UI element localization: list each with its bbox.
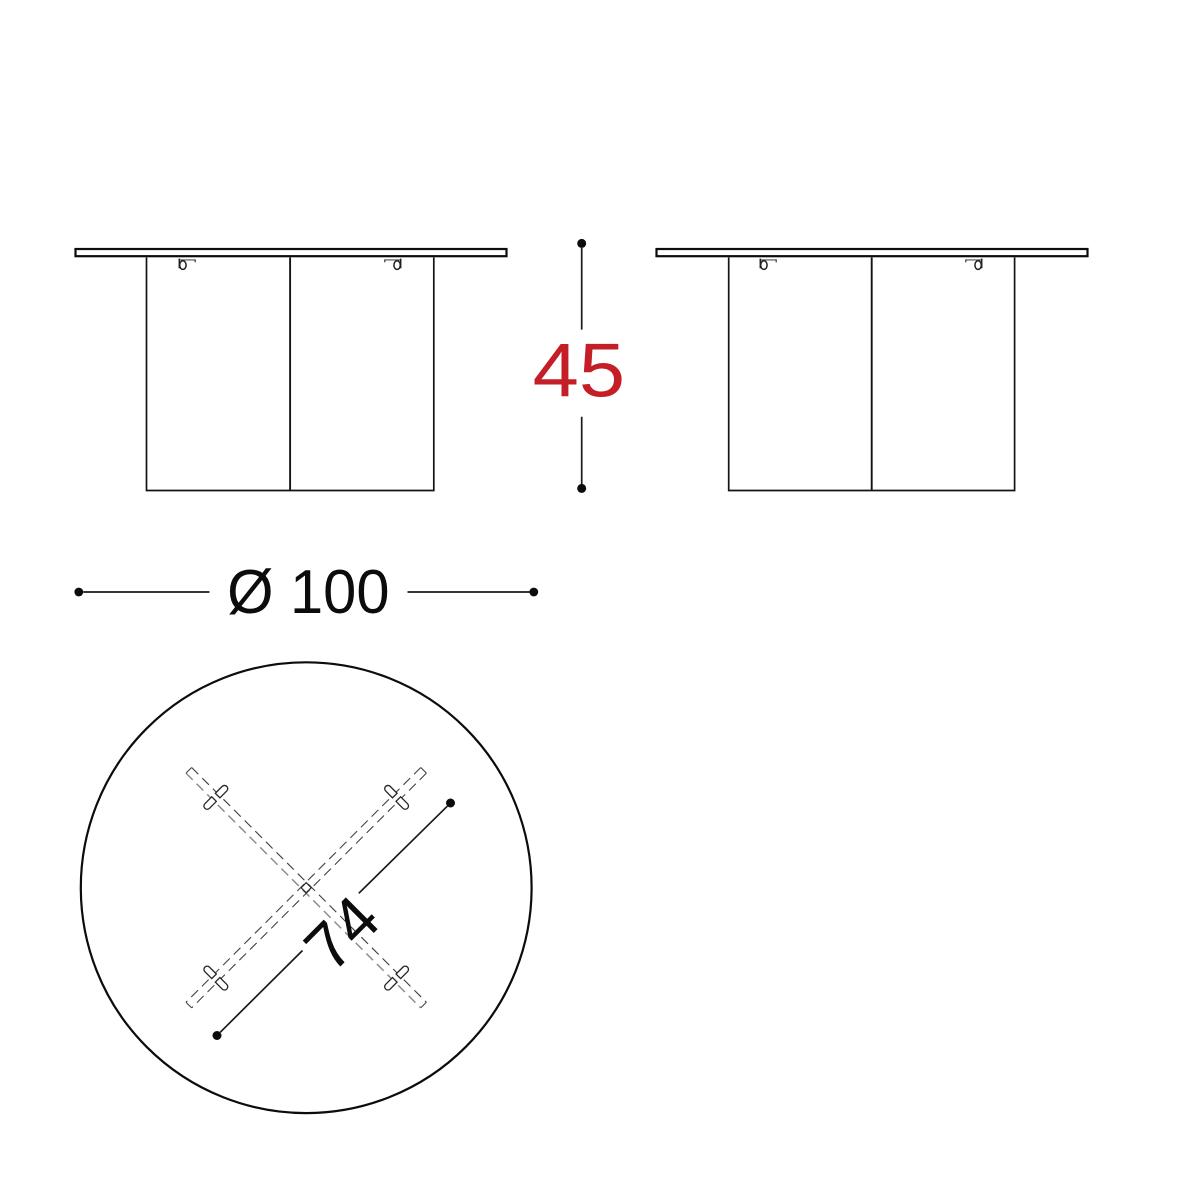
svg-text:45: 45 <box>533 329 626 414</box>
svg-text:Ø 100: Ø 100 <box>227 558 389 627</box>
